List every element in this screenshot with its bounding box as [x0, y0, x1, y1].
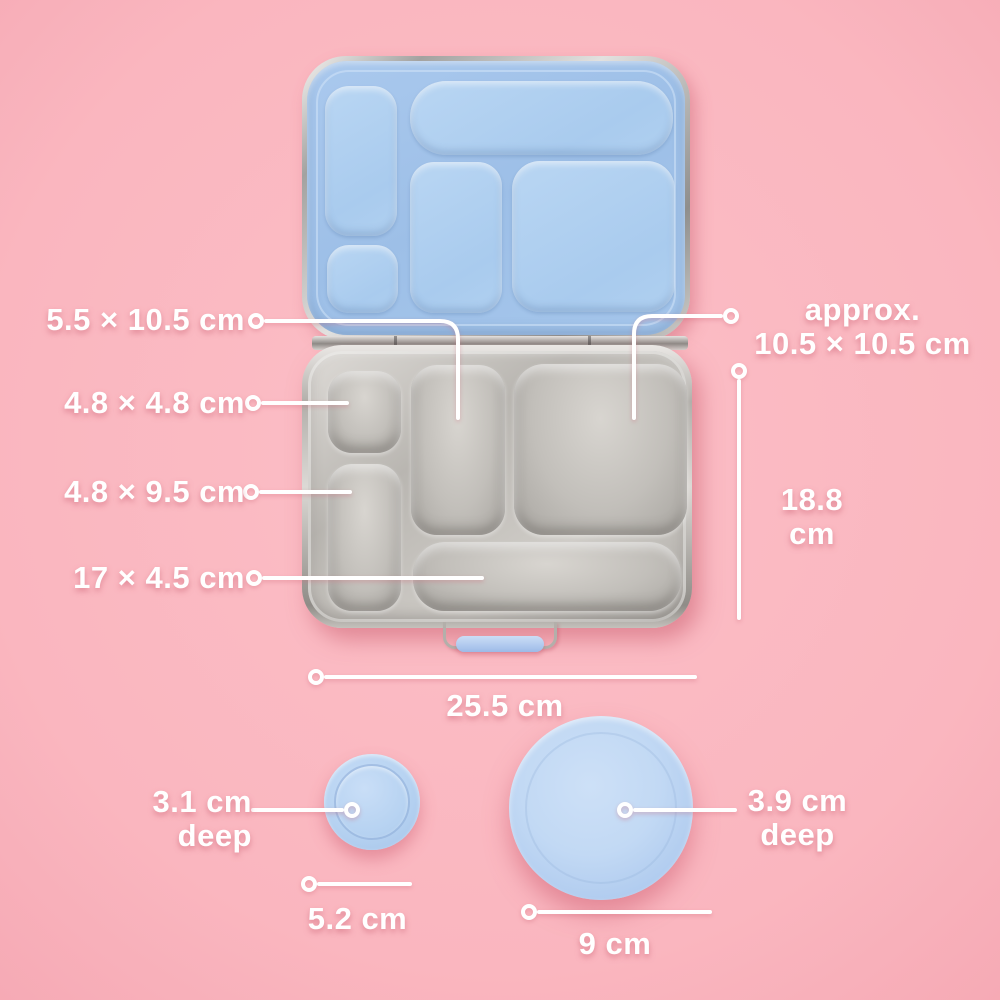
dimension-label-small-lid-depth: 3.1 cm deep — [152, 785, 252, 853]
ring-marker-box-width — [310, 671, 322, 683]
pointer-line-large-square — [634, 316, 721, 418]
dimension-label-mid-compartment: 5.5 × 10.5 cm — [46, 303, 245, 337]
dimension-label-small-lid-diameter: 5.2 cm — [280, 902, 435, 936]
dimension-label-small-square: 4.8 × 4.8 cm — [64, 386, 245, 420]
dimension-label-box-height-line1: 18.8 — [770, 483, 854, 517]
dimension-label-box-height-line2: cm — [770, 517, 854, 551]
dimension-label-plate-depth-line1: 3.9 cm — [710, 784, 885, 818]
ring-marker-bottom-long — [248, 572, 260, 584]
dimension-label-small-lid-depth-line1: 3.1 cm — [152, 785, 252, 819]
dimension-label-bottom-long: 17 × 4.5 cm — [73, 561, 245, 595]
dimension-label-large-square-line2: 10.5 × 10.5 cm — [740, 327, 985, 361]
dimension-label-small-lid-depth-line2: deep — [152, 819, 252, 853]
dimension-label-box-width: 25.5 cm — [400, 689, 610, 723]
ring-marker-plate-depth — [619, 804, 631, 816]
dimension-label-plate-diameter: 9 cm — [540, 927, 690, 961]
ring-marker-plate-diameter — [523, 906, 535, 918]
ring-marker-large-square — [725, 310, 737, 322]
dimension-label-plate-depth-line2: deep — [710, 818, 885, 852]
dimension-label-large-square-line1: approx. — [740, 293, 985, 327]
dimension-label-left-rect: 4.8 × 9.5 cm — [64, 475, 245, 509]
ring-marker-left-rect — [245, 486, 257, 498]
ring-marker-small-lid-depth — [346, 804, 358, 816]
ring-marker-box-height — [733, 365, 745, 377]
ring-marker-small-square — [247, 397, 259, 409]
ring-marker-small-lid-diameter — [303, 878, 315, 890]
dimension-label-large-square: approx. 10.5 × 10.5 cm — [740, 293, 985, 361]
dimension-label-box-height: 18.8 cm — [770, 483, 854, 551]
product-dimensions-diagram: 5.5 × 10.5 cm 4.8 × 4.8 cm 4.8 × 9.5 cm … — [0, 0, 1000, 1000]
dimension-label-plate-depth: 3.9 cm deep — [710, 784, 885, 852]
ring-marker-mid-compartment — [250, 315, 262, 327]
